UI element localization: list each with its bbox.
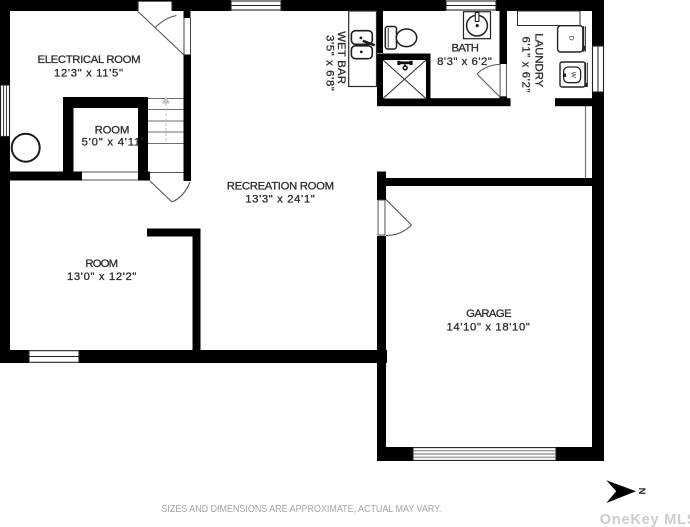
svg-text:RECREATION ROOM: RECREATION ROOM xyxy=(227,181,334,193)
svg-text:6'1" x 6'2": 6'1" x 6'2" xyxy=(520,36,532,92)
svg-text:N: N xyxy=(636,488,647,495)
svg-text:5'0" x 4'11': 5'0" x 4'11' xyxy=(82,136,143,148)
svg-text:ROOM: ROOM xyxy=(85,258,118,270)
svg-text:OneKey MLS: OneKey MLS xyxy=(600,512,690,527)
svg-text:D: D xyxy=(567,36,574,41)
svg-text:3'5" x 6'8": 3'5" x 6'8" xyxy=(324,35,336,91)
svg-text:ROOM: ROOM xyxy=(95,125,130,137)
svg-text:WET BAR: WET BAR xyxy=(335,31,347,84)
svg-text:8'3" x 6'2": 8'3" x 6'2" xyxy=(437,56,492,68)
svg-text:BATH: BATH xyxy=(452,43,479,55)
svg-text:ELECTRICAL ROOM: ELECTRICAL ROOM xyxy=(38,54,141,66)
svg-text:SIZES AND DIMENSIONS ARE APPRO: SIZES AND DIMENSIONS ARE APPROXIMATE, AC… xyxy=(161,504,441,515)
svg-text:13'0" x 12'2": 13'0" x 12'2" xyxy=(67,271,137,283)
svg-text:13'3" x 24'1": 13'3" x 24'1" xyxy=(245,194,315,206)
svg-text:12'3" x 11'5": 12'3" x 11'5" xyxy=(54,68,123,80)
svg-text:W: W xyxy=(570,72,577,79)
svg-text:GARAGE: GARAGE xyxy=(466,308,512,320)
svg-text:14'10" x 18'10": 14'10" x 18'10" xyxy=(447,322,530,334)
svg-text:LAUNDRY: LAUNDRY xyxy=(533,33,545,87)
